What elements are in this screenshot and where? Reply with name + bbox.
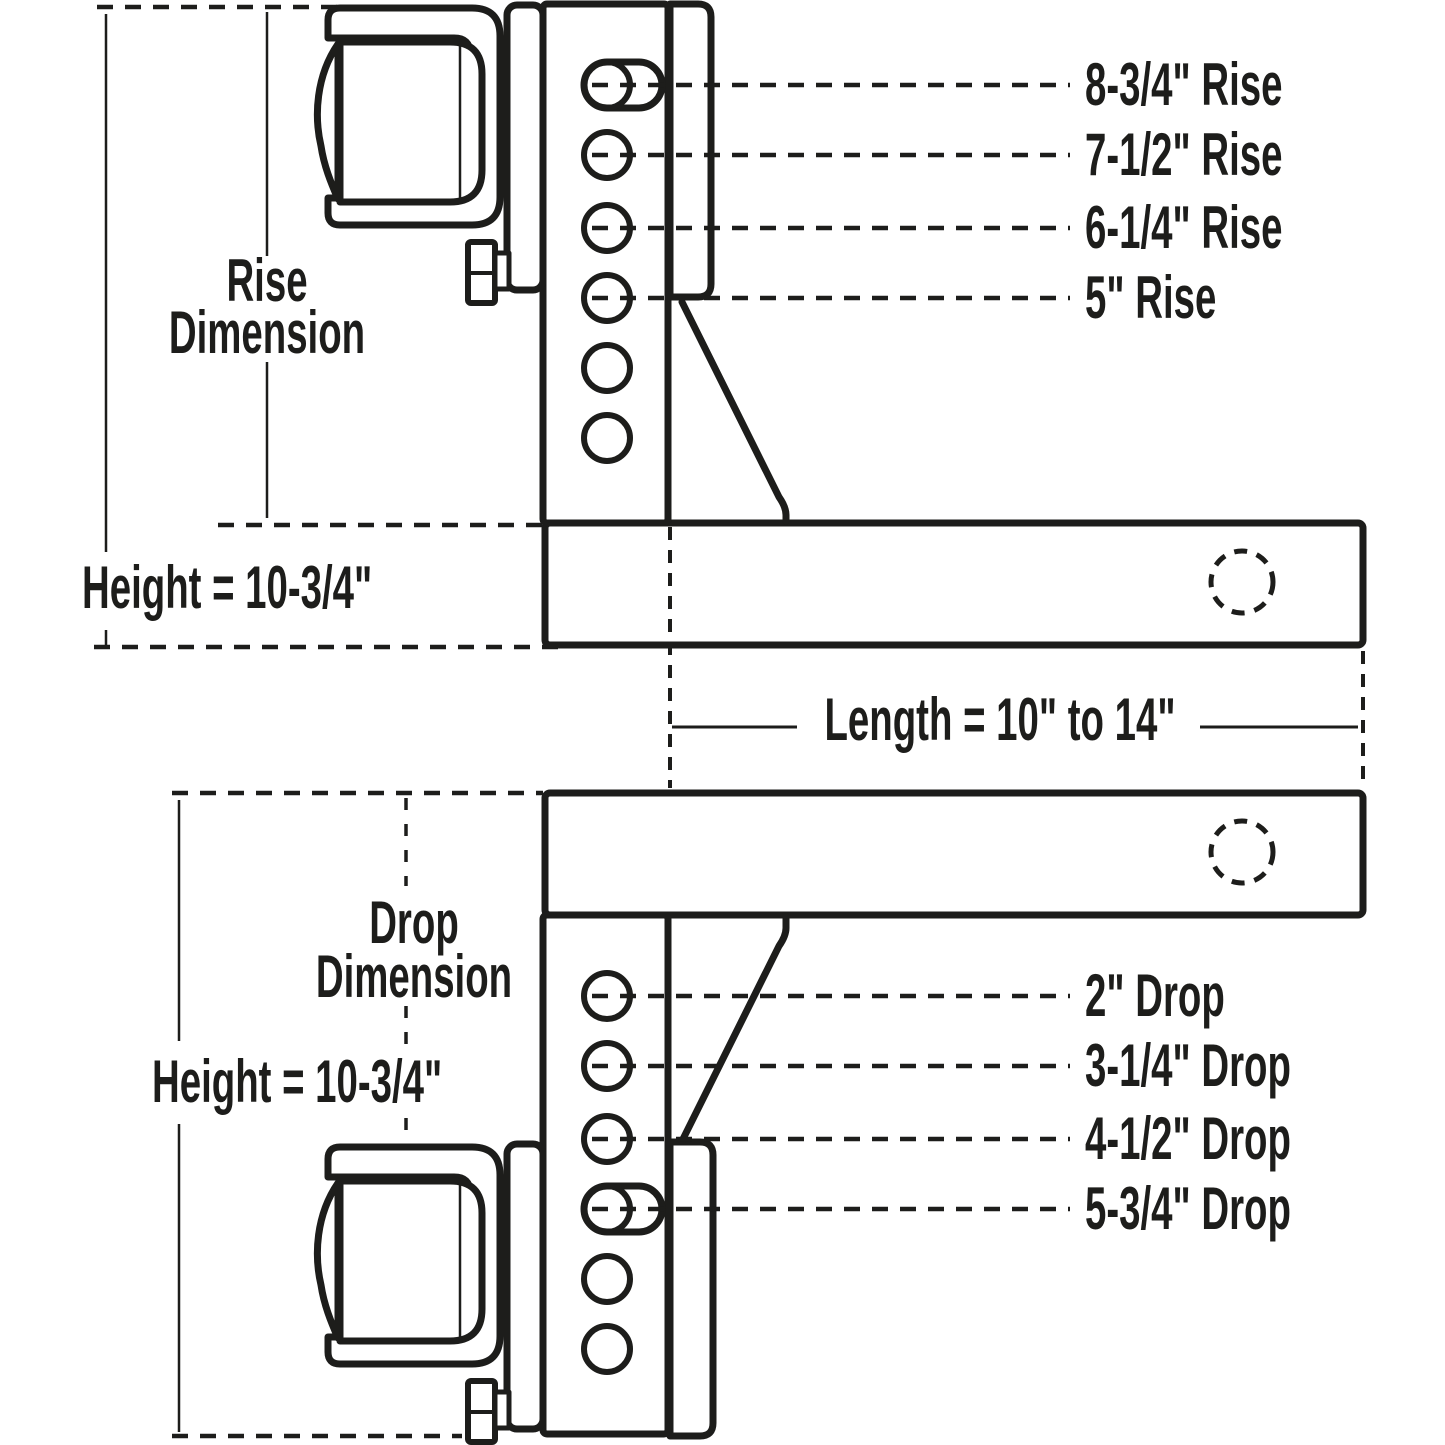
bottom-adjustment-bar <box>543 915 668 1434</box>
rise-label-4: 5" Rise <box>1085 263 1216 331</box>
drop-label-1: 2" Drop <box>1085 961 1225 1029</box>
rise-label-1: 8-3/4" Rise <box>1085 50 1282 118</box>
hitch-dimension-diagram: Rise Dimension Height = 10-3/4" 8-3/4" R… <box>0 0 1445 1445</box>
top-gusset-diagonal <box>682 302 786 521</box>
diagram-canvas: Rise Dimension Height = 10-3/4" 8-3/4" R… <box>0 0 1445 1445</box>
length-label: Length = 10" to 14" <box>824 685 1175 753</box>
rise-label-2: 7-1/2" Rise <box>1085 120 1282 188</box>
bottom-height-label: Height = 10-3/4" <box>152 1047 442 1115</box>
top-shank <box>545 523 1363 645</box>
top-coupler-clamp <box>317 5 543 303</box>
top-height-label: Height = 10-3/4" <box>82 553 372 621</box>
bottom-gusset-diagonal <box>682 917 786 1141</box>
drop-label-3: 4-1/2" Drop <box>1085 1104 1291 1172</box>
drop-label-2: 3-1/4" Drop <box>1085 1031 1291 1099</box>
bottom-shank <box>545 793 1363 915</box>
drop-dimension-label-line2: Dimension <box>316 942 512 1010</box>
bottom-coupler-clamp <box>317 1144 543 1442</box>
rise-label-3: 6-1/4" Rise <box>1085 193 1282 261</box>
bottom-upright-plate <box>670 1142 713 1436</box>
drop-label-4: 5-3/4" Drop <box>1085 1174 1291 1242</box>
rise-dimension-label-line2: Dimension <box>169 298 365 366</box>
top-upright-plate <box>670 4 711 297</box>
